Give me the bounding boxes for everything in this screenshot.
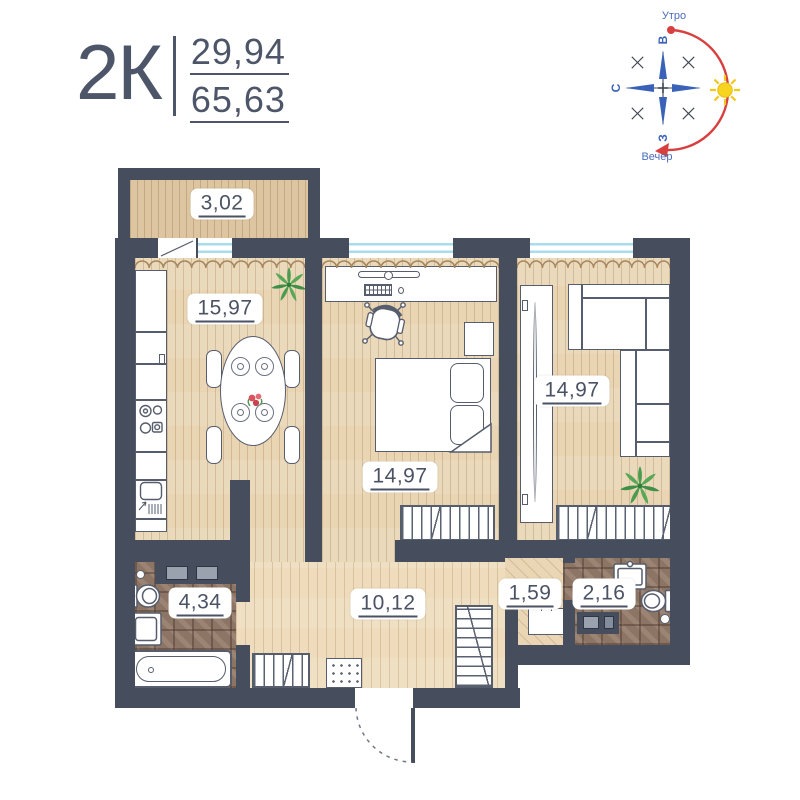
plant-icon xyxy=(270,264,308,302)
header-divider xyxy=(173,36,176,116)
wc-floor-drain xyxy=(660,614,670,624)
wall-bottom xyxy=(413,688,520,708)
compass-west-label: З xyxy=(656,134,670,142)
room-label-wc: 2,16 xyxy=(573,579,636,610)
evening-label: Вечер xyxy=(641,151,672,163)
bedroom-window xyxy=(349,238,453,258)
washer-appliance xyxy=(166,566,188,580)
wall-bottom xyxy=(115,688,355,708)
flowers-icon xyxy=(246,390,264,410)
blanket-fold xyxy=(451,424,491,452)
curtain-wave xyxy=(517,259,670,270)
sofa-top-section xyxy=(568,284,670,350)
morning-label: Утро xyxy=(662,10,686,22)
sunrise-dot xyxy=(667,26,675,34)
dining-chair xyxy=(284,426,300,464)
shoe-rack xyxy=(252,653,310,688)
wall-hall-storage xyxy=(505,605,518,688)
wall-bedroom-living xyxy=(499,258,517,558)
entrance-door-arc xyxy=(355,706,415,766)
sun-icon xyxy=(710,75,740,105)
plate-icon xyxy=(231,357,250,376)
curtain-wave xyxy=(322,259,499,270)
floor-drain xyxy=(136,570,145,579)
sofa-side-section xyxy=(620,350,670,457)
doormat xyxy=(326,658,362,688)
wall-left xyxy=(115,238,135,708)
wall-bathroom-right xyxy=(236,645,250,688)
dryer-appliance xyxy=(196,566,218,580)
monitor-stand xyxy=(384,271,393,280)
total-area-value: 65,63 xyxy=(190,82,289,123)
bathtub xyxy=(130,650,232,688)
wardrobe-handle xyxy=(522,494,528,505)
cabinet-handle xyxy=(159,354,165,364)
wall-bathroom-right xyxy=(236,562,250,602)
apartment-type-label: 2К xyxy=(76,28,161,116)
kitchen-sink-icon xyxy=(137,480,165,516)
wc-toilet-icon xyxy=(640,588,672,614)
wall-balcony-top xyxy=(118,168,320,180)
storage-cabinet xyxy=(528,608,564,635)
compass-rose: В С З Утро Вечер xyxy=(598,4,748,162)
balcony-window xyxy=(196,238,232,258)
pillow xyxy=(450,363,484,403)
wardrobe-rail-living xyxy=(556,505,672,541)
shelf-closet xyxy=(455,605,493,688)
wardrobe-rail-bedroom xyxy=(400,505,495,541)
living-window xyxy=(530,238,633,258)
bathroom-counter xyxy=(155,562,245,584)
plate-icon xyxy=(255,357,274,376)
room-label-living: 14,97 xyxy=(534,376,609,407)
area-values: 29,94 65,63 xyxy=(190,34,289,123)
wall-kitchen-bedroom xyxy=(305,258,322,562)
bathtub-drain xyxy=(148,667,154,673)
wall-bathroom-top xyxy=(135,540,250,562)
dining-chair xyxy=(206,426,222,464)
room-label-storage: 1,59 xyxy=(499,579,562,610)
room-label-kitchen-living: 15,97 xyxy=(187,294,262,325)
mouse-icon xyxy=(398,287,404,294)
room-label-balcony: 3,02 xyxy=(191,189,254,220)
wall-top xyxy=(232,238,349,258)
room-label-bedroom: 14,97 xyxy=(362,462,437,493)
washing-machine xyxy=(577,612,619,634)
balcony-door xyxy=(158,238,196,258)
plan-header: 2К 29,94 65,63 xyxy=(76,28,289,123)
dining-chair xyxy=(284,350,300,388)
compass-north-label: С xyxy=(609,83,623,92)
office-chair-icon xyxy=(358,296,412,350)
plant-icon xyxy=(620,464,660,504)
wall-storage-wc xyxy=(563,545,575,563)
wall-bedroom-bottom xyxy=(395,540,505,562)
wall-right xyxy=(670,238,690,665)
stove-icon xyxy=(137,401,165,447)
living-area-value: 29,94 xyxy=(190,34,289,75)
wardrobe-handle xyxy=(522,300,528,311)
keyboard-icon xyxy=(364,284,392,296)
wall-living-bottom xyxy=(499,540,690,558)
room-label-bathroom: 4,34 xyxy=(169,588,232,619)
room-label-hallway: 10,12 xyxy=(350,589,425,620)
nightstand xyxy=(464,322,494,356)
compass-east-label: В xyxy=(656,35,670,44)
wall-bottom-right xyxy=(505,645,690,665)
wall-top xyxy=(453,238,530,258)
